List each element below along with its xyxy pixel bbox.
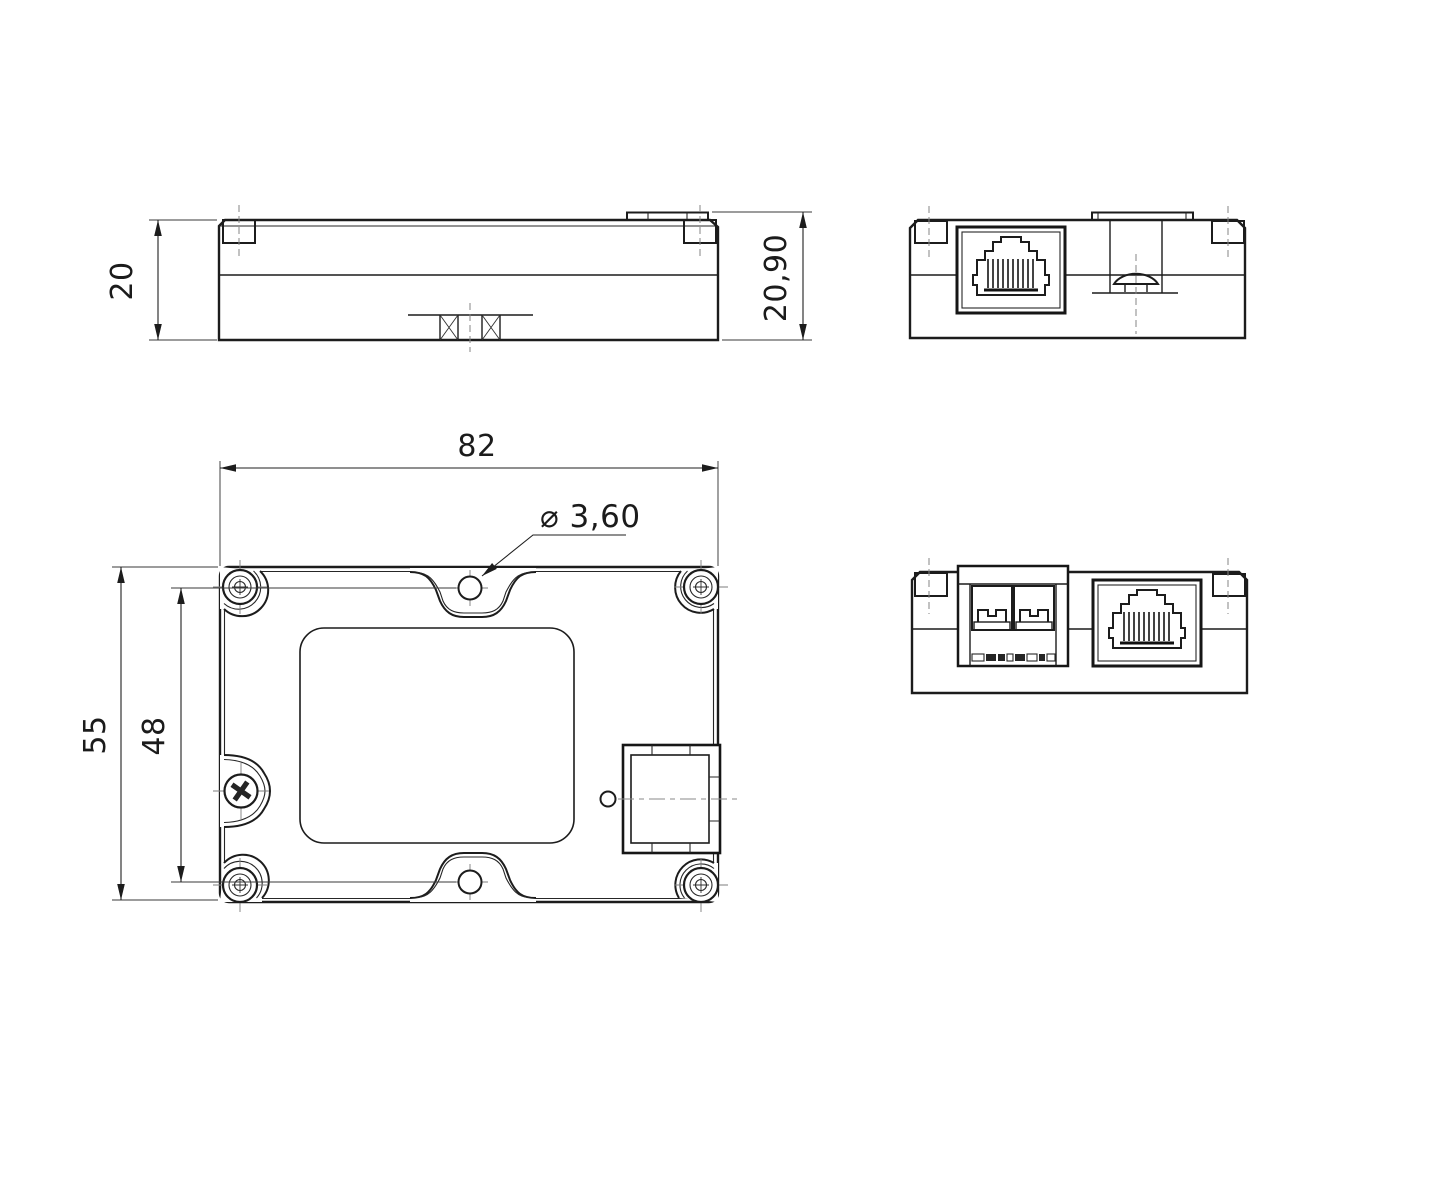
dim-hole-diameter: ⌀ 3,60	[482, 499, 641, 576]
dim-body-height: 20	[105, 220, 217, 340]
dim-label-depth: 55	[78, 715, 113, 754]
plan-view	[213, 560, 738, 912]
technical-drawing: 82 55 48 20 20,90 ⌀ 3,60	[0, 0, 1445, 1204]
dim-label-hole-spacing: 48	[137, 716, 172, 755]
bottom-boss-section	[408, 303, 533, 352]
connector-cutout	[618, 745, 738, 853]
dim-hole-spacing: 48	[137, 588, 456, 882]
led-hole	[601, 792, 616, 807]
rj45-jack	[1093, 580, 1201, 666]
corner-boss	[915, 573, 947, 596]
corner-screw	[674, 858, 728, 912]
dim-label-overall-height: 20,90	[759, 234, 794, 322]
corner-boss	[915, 221, 947, 243]
dim-overall-height: 20,90	[712, 212, 812, 340]
terminal-pin-strip	[972, 654, 1055, 661]
drawing-canvas: 82 55 48 20 20,90 ⌀ 3,60	[0, 0, 1445, 1204]
dim-label-body-height: 20	[105, 261, 140, 300]
cover-screw	[1092, 220, 1178, 334]
dim-label-hole-diameter: ⌀ 3,60	[540, 499, 641, 535]
rj45-jack	[957, 227, 1065, 313]
corner-boss	[1213, 574, 1245, 596]
lid-recess	[300, 628, 574, 843]
rear-end-view	[912, 558, 1247, 693]
terminal-block	[958, 566, 1068, 666]
dim-label-width: 82	[457, 429, 496, 464]
dim-plan-width: 82	[220, 429, 718, 566]
front-end-view	[910, 206, 1245, 338]
side-view	[219, 205, 718, 352]
